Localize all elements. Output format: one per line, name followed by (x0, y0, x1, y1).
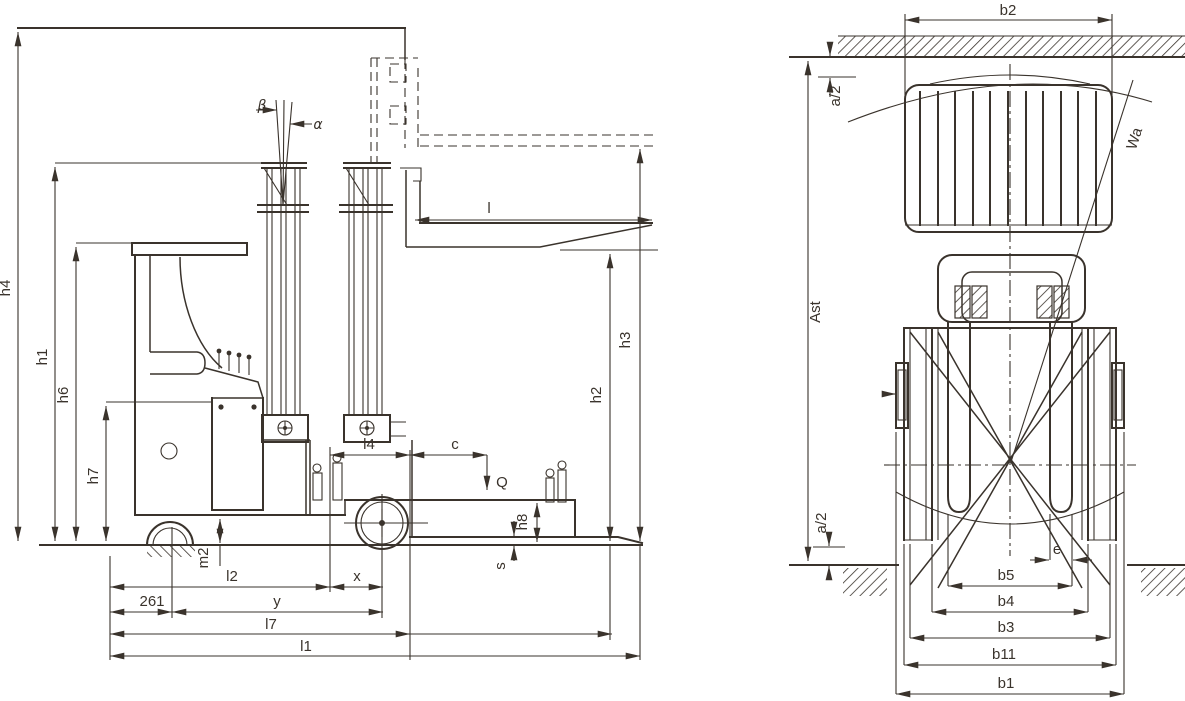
dim-h7-label: h7 (85, 468, 102, 485)
fork-raised-dashed (420, 135, 655, 146)
dim-a2-bottom: a/2 (813, 513, 845, 580)
dim-b3: b3 (910, 544, 1110, 638)
dim-261-label: 261 (139, 593, 164, 610)
dim-h1-label: h1 (34, 349, 51, 366)
mast-extended (340, 163, 406, 442)
dim-wa-label: Wa (1123, 125, 1146, 152)
overhead-guard (132, 243, 247, 515)
reach-carriage-top (938, 255, 1085, 322)
dim-l-fork-length: l (415, 200, 652, 220)
dim-c-label: c (451, 436, 459, 453)
ground-line (40, 545, 642, 557)
dim-261: 261 (110, 593, 172, 612)
dim-y-wheelbase: y (172, 593, 383, 612)
dim-h4: h4 (0, 32, 18, 541)
angle-beta-label: β (257, 98, 267, 114)
rack-wall-top (790, 36, 1185, 57)
control-levers (217, 349, 252, 375)
dim-m2-label: m2 (195, 548, 212, 569)
mast-raised-dashed (371, 58, 418, 163)
load-wheel (344, 494, 428, 618)
dim-m2: m2 (195, 519, 220, 568)
center-lines (884, 64, 1136, 588)
dim-h3-label: h3 (617, 332, 634, 349)
dim-x: x (330, 568, 383, 587)
dim-l4-label: l4 (363, 436, 375, 453)
dim-l2-label: l2 (226, 568, 238, 585)
dim-h6: h6 (55, 243, 132, 541)
fork-mid-position (400, 168, 652, 247)
dim-b4-label: b4 (998, 593, 1015, 610)
dim-a2-top-label: a/2 (827, 86, 844, 107)
dim-s-label: s (492, 562, 509, 570)
side-view: h4 h1 h6 h7 h2 h3 h8 (0, 28, 658, 660)
dim-c-load-center: c (410, 436, 487, 455)
dim-l7-label: l7 (265, 616, 277, 633)
dim-b1-label: b1 (998, 675, 1015, 692)
technical-drawing: h4 h1 h6 h7 h2 h3 h8 (0, 0, 1185, 701)
angle-alpha-label: α (313, 117, 323, 133)
dim-l1: l1 (110, 638, 640, 656)
swing-envelope-arcs (848, 75, 1152, 524)
dim-b3-label: b3 (998, 619, 1015, 636)
dim-b2-label: b2 (1000, 2, 1017, 19)
aisle-boundary-bottom (790, 565, 1185, 596)
mast-tilt-angles: β α (256, 98, 323, 205)
dim-ast: Ast (807, 61, 824, 561)
load-q-label: Q (496, 474, 508, 491)
load-arrow-q: Q (487, 455, 508, 491)
dim-x-label: x (353, 568, 361, 585)
mast-raised-top-line (18, 28, 405, 60)
operator-cabin (135, 257, 263, 402)
dim-h7: h7 (85, 402, 137, 541)
dim-l1-label: l1 (300, 638, 312, 655)
dim-h4-label: h4 (0, 280, 14, 297)
dim-a2-bottom-label: a/2 (813, 513, 830, 534)
dim-h3: h3 (617, 149, 640, 660)
dim-b5-label: b5 (998, 567, 1015, 584)
dim-h2-label: h2 (588, 387, 605, 404)
dim-ast-label: Ast (807, 300, 824, 323)
top-view: Wa (790, 2, 1185, 694)
dim-y-label: y (273, 593, 281, 610)
dim-b11-label: b11 (992, 646, 1016, 663)
dim-l7: l7 (110, 616, 612, 634)
dim-l-label: l (487, 200, 490, 217)
dim-e-label: e (1053, 541, 1061, 558)
pallet-load (905, 85, 1112, 232)
dim-h8-label: h8 (514, 514, 531, 531)
dim-h2: h2 (560, 250, 658, 640)
dim-h6-label: h6 (55, 387, 72, 404)
